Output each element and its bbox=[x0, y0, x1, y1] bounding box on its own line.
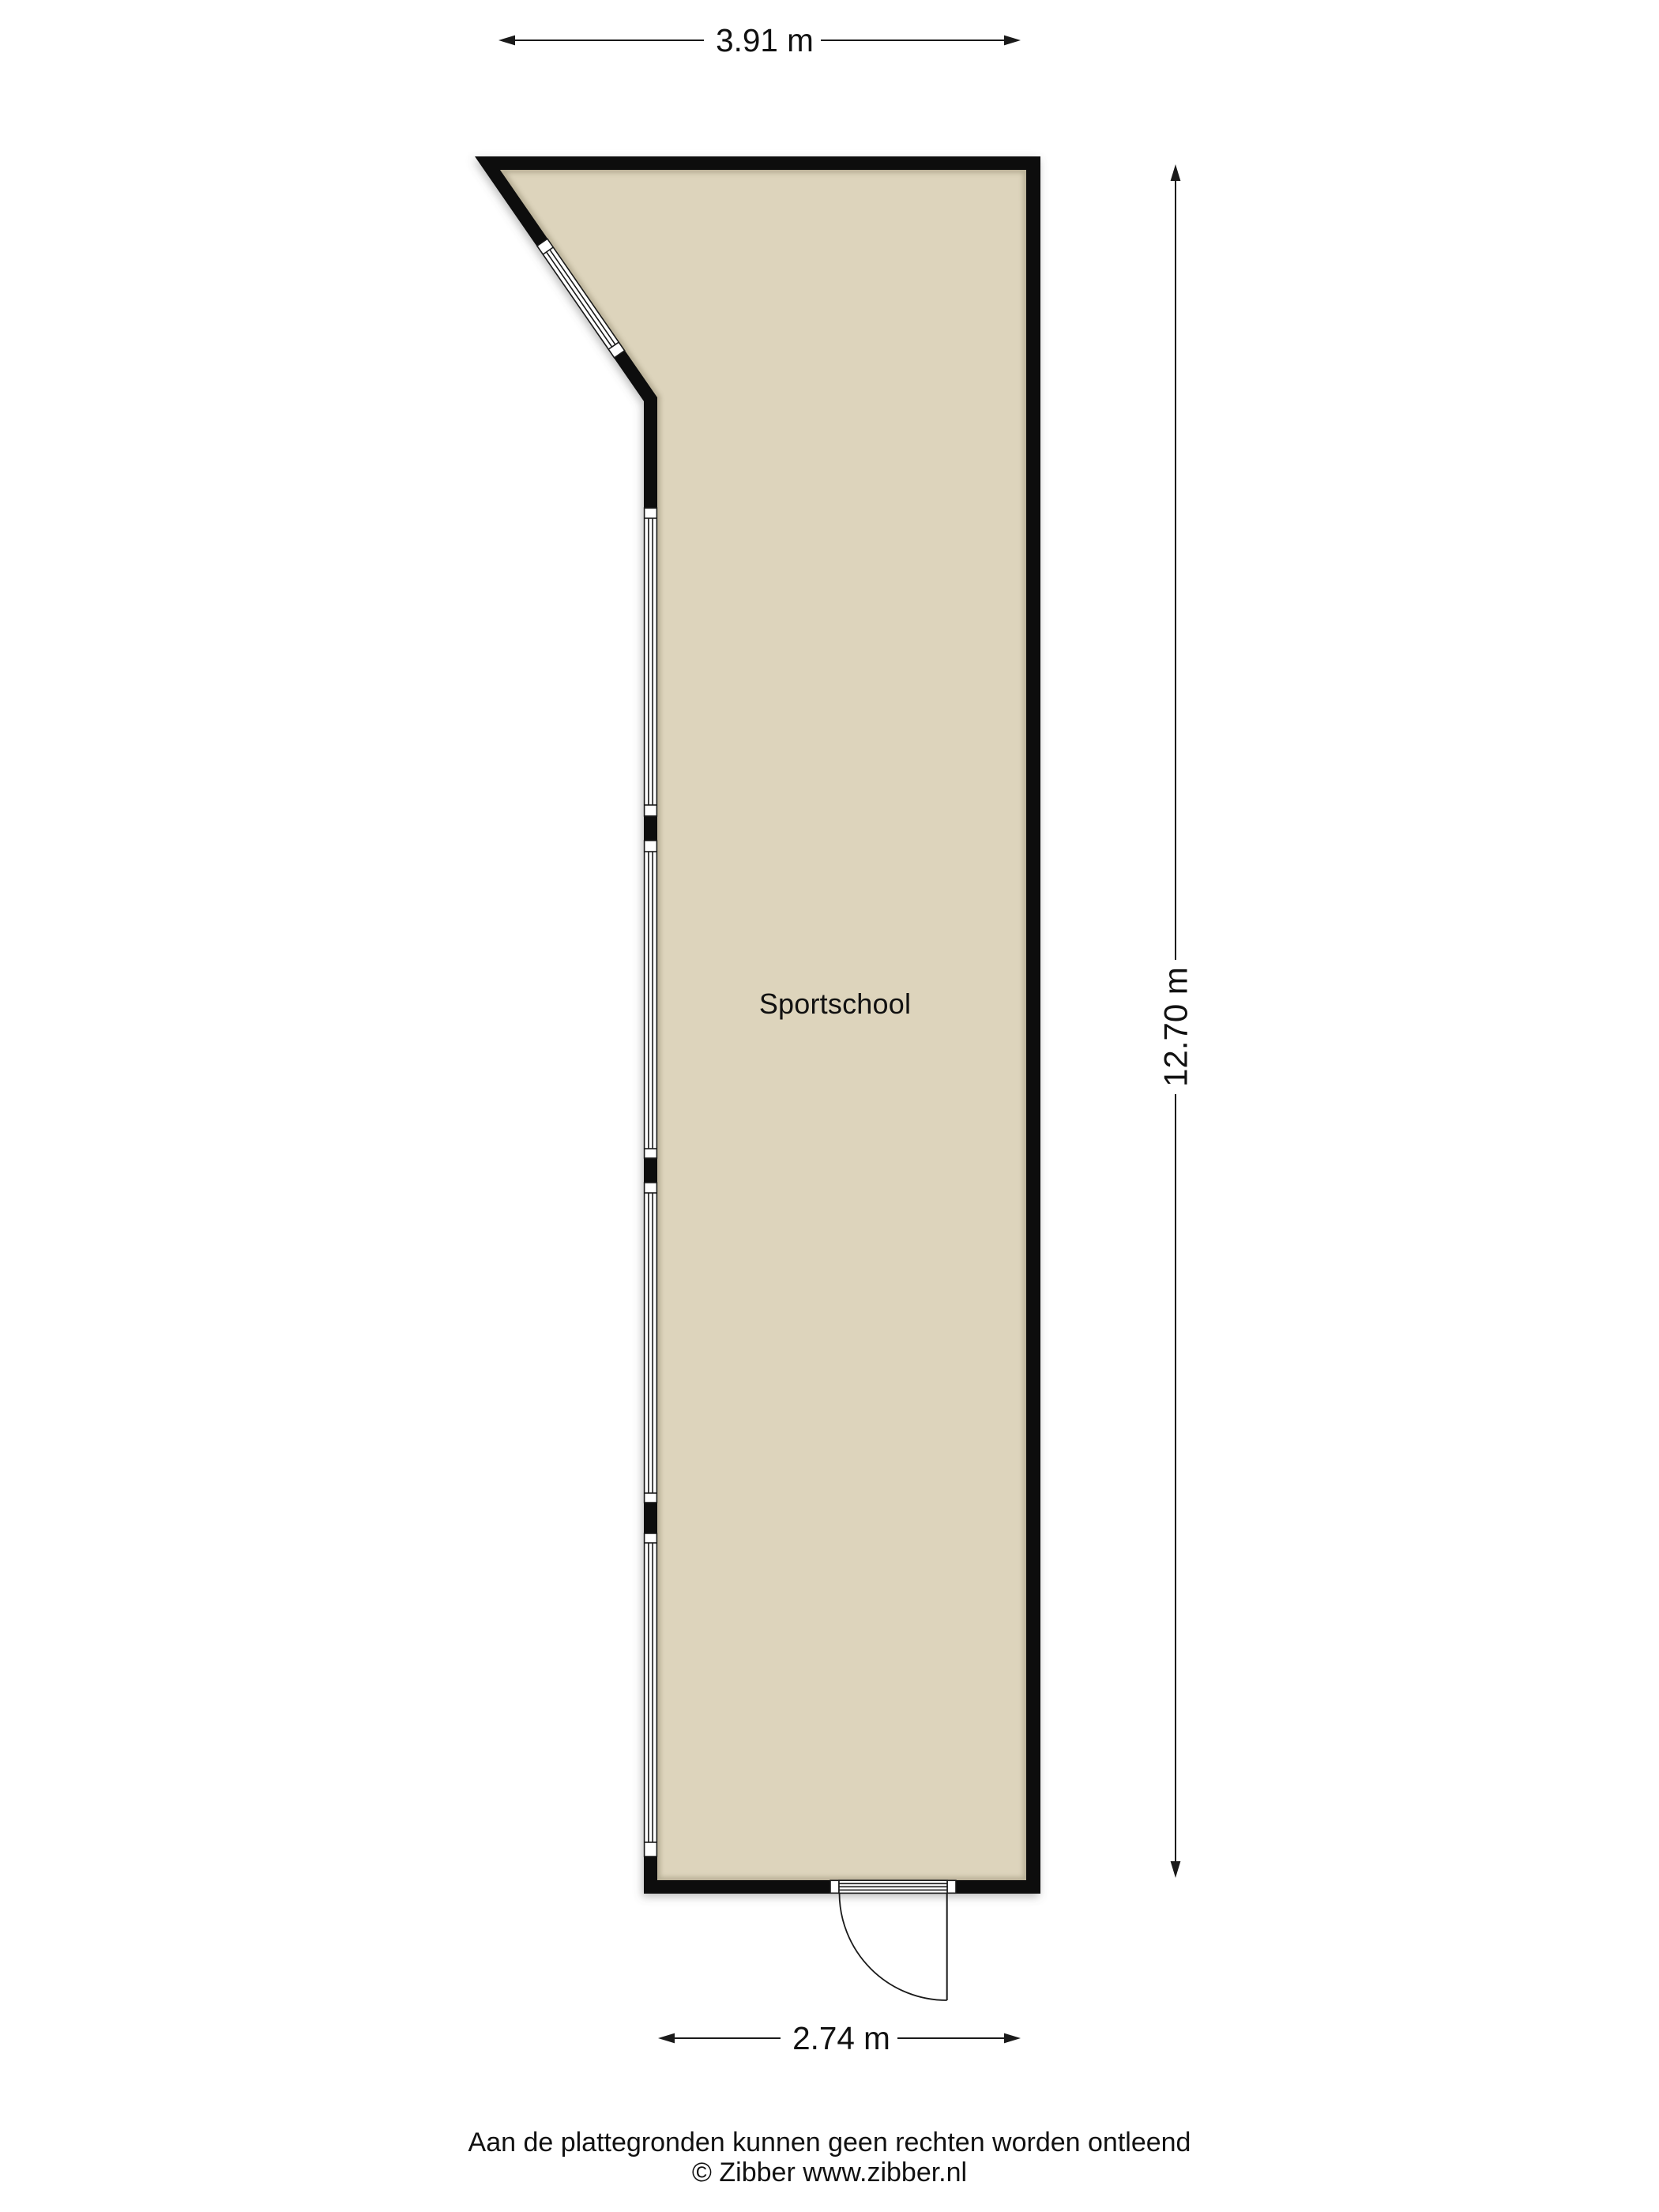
svg-text:3.91 m: 3.91 m bbox=[716, 22, 814, 58]
svg-text:12.70 m: 12.70 m bbox=[1157, 967, 1194, 1087]
svg-text:© Zibber www.zibber.nl: © Zibber www.zibber.nl bbox=[692, 2157, 967, 2188]
svg-text:2.74 m: 2.74 m bbox=[792, 2020, 890, 2056]
svg-text:Aan de plattegronden kunnen ge: Aan de plattegronden kunnen geen rechten… bbox=[468, 2127, 1191, 2157]
svg-text:Sportschool: Sportschool bbox=[759, 987, 911, 1020]
